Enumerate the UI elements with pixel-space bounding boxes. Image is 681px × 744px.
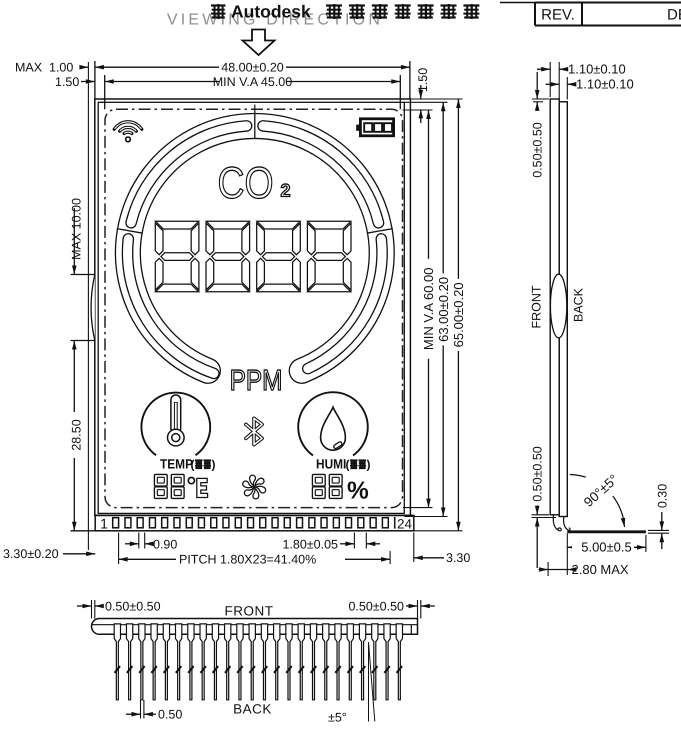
svg-text:PITCH 1.80X23=41.40%: PITCH 1.80X23=41.40% [179,553,316,567]
svg-text:PPM: PPM [230,365,283,397]
svg-text:0.50±0.50: 0.50±0.50 [348,599,404,613]
svg-text:0.90: 0.90 [153,537,177,551]
svg-text:MIN V.A 60.00: MIN V.A 60.00 [421,267,436,350]
svg-text:(: ( [191,457,195,471]
svg-text:MIN V.A 45.00: MIN V.A 45.00 [213,75,292,89]
svg-text:0.30: 0.30 [656,484,670,508]
svg-text:63.00±0.20: 63.00±0.20 [436,277,451,342]
svg-text:MAX: MAX [15,61,43,75]
svg-text:1.00: 1.00 [49,61,73,75]
svg-text:TEMP: TEMP [160,457,193,472]
svg-text:2.80 MAX: 2.80 MAX [572,562,629,577]
svg-text:0.50±0.50: 0.50±0.50 [531,122,545,178]
svg-text:Autodesk: Autodesk [231,2,311,22]
svg-text:0.50±0.50: 0.50±0.50 [531,446,545,502]
svg-text:±5°: ±5° [328,711,347,725]
svg-text:5.00±0.5: 5.00±0.5 [581,540,632,555]
svg-text:2: 2 [281,181,291,201]
svg-text:): ) [212,457,216,471]
svg-text:28.50: 28.50 [70,419,84,450]
svg-text:24: 24 [397,517,413,532]
svg-text:1.10±0.10: 1.10±0.10 [568,62,626,77]
svg-text:REV.: REV. [541,7,575,24]
svg-text:1: 1 [100,515,108,531]
svg-text:MAX 10.00: MAX 10.00 [70,198,84,260]
svg-text:DE: DE [667,7,681,24]
svg-text:1.50: 1.50 [55,75,79,89]
svg-text:3.30: 3.30 [446,551,470,565]
svg-text:0.50±0.50: 0.50±0.50 [105,599,161,613]
svg-text:48.00±0.20: 48.00±0.20 [221,61,284,75]
svg-text:BACK: BACK [572,287,586,322]
svg-text:FRONT: FRONT [530,285,544,328]
svg-text:BACK: BACK [233,702,272,717]
svg-text:): ) [367,457,371,471]
svg-text:HUMI: HUMI [316,457,346,472]
svg-text:FRONT: FRONT [225,603,274,618]
svg-text:1.10±0.10: 1.10±0.10 [576,77,634,92]
svg-text:0.50: 0.50 [158,708,182,722]
svg-text:1.80±0.05: 1.80±0.05 [282,537,338,551]
svg-text:65.00±0.20: 65.00±0.20 [451,282,466,347]
svg-text:CO: CO [218,159,274,208]
svg-text:1.50: 1.50 [416,68,430,92]
svg-text:(: ( [346,457,350,471]
svg-text:%: % [347,478,369,505]
svg-text:3.30±0.20: 3.30±0.20 [3,547,59,561]
